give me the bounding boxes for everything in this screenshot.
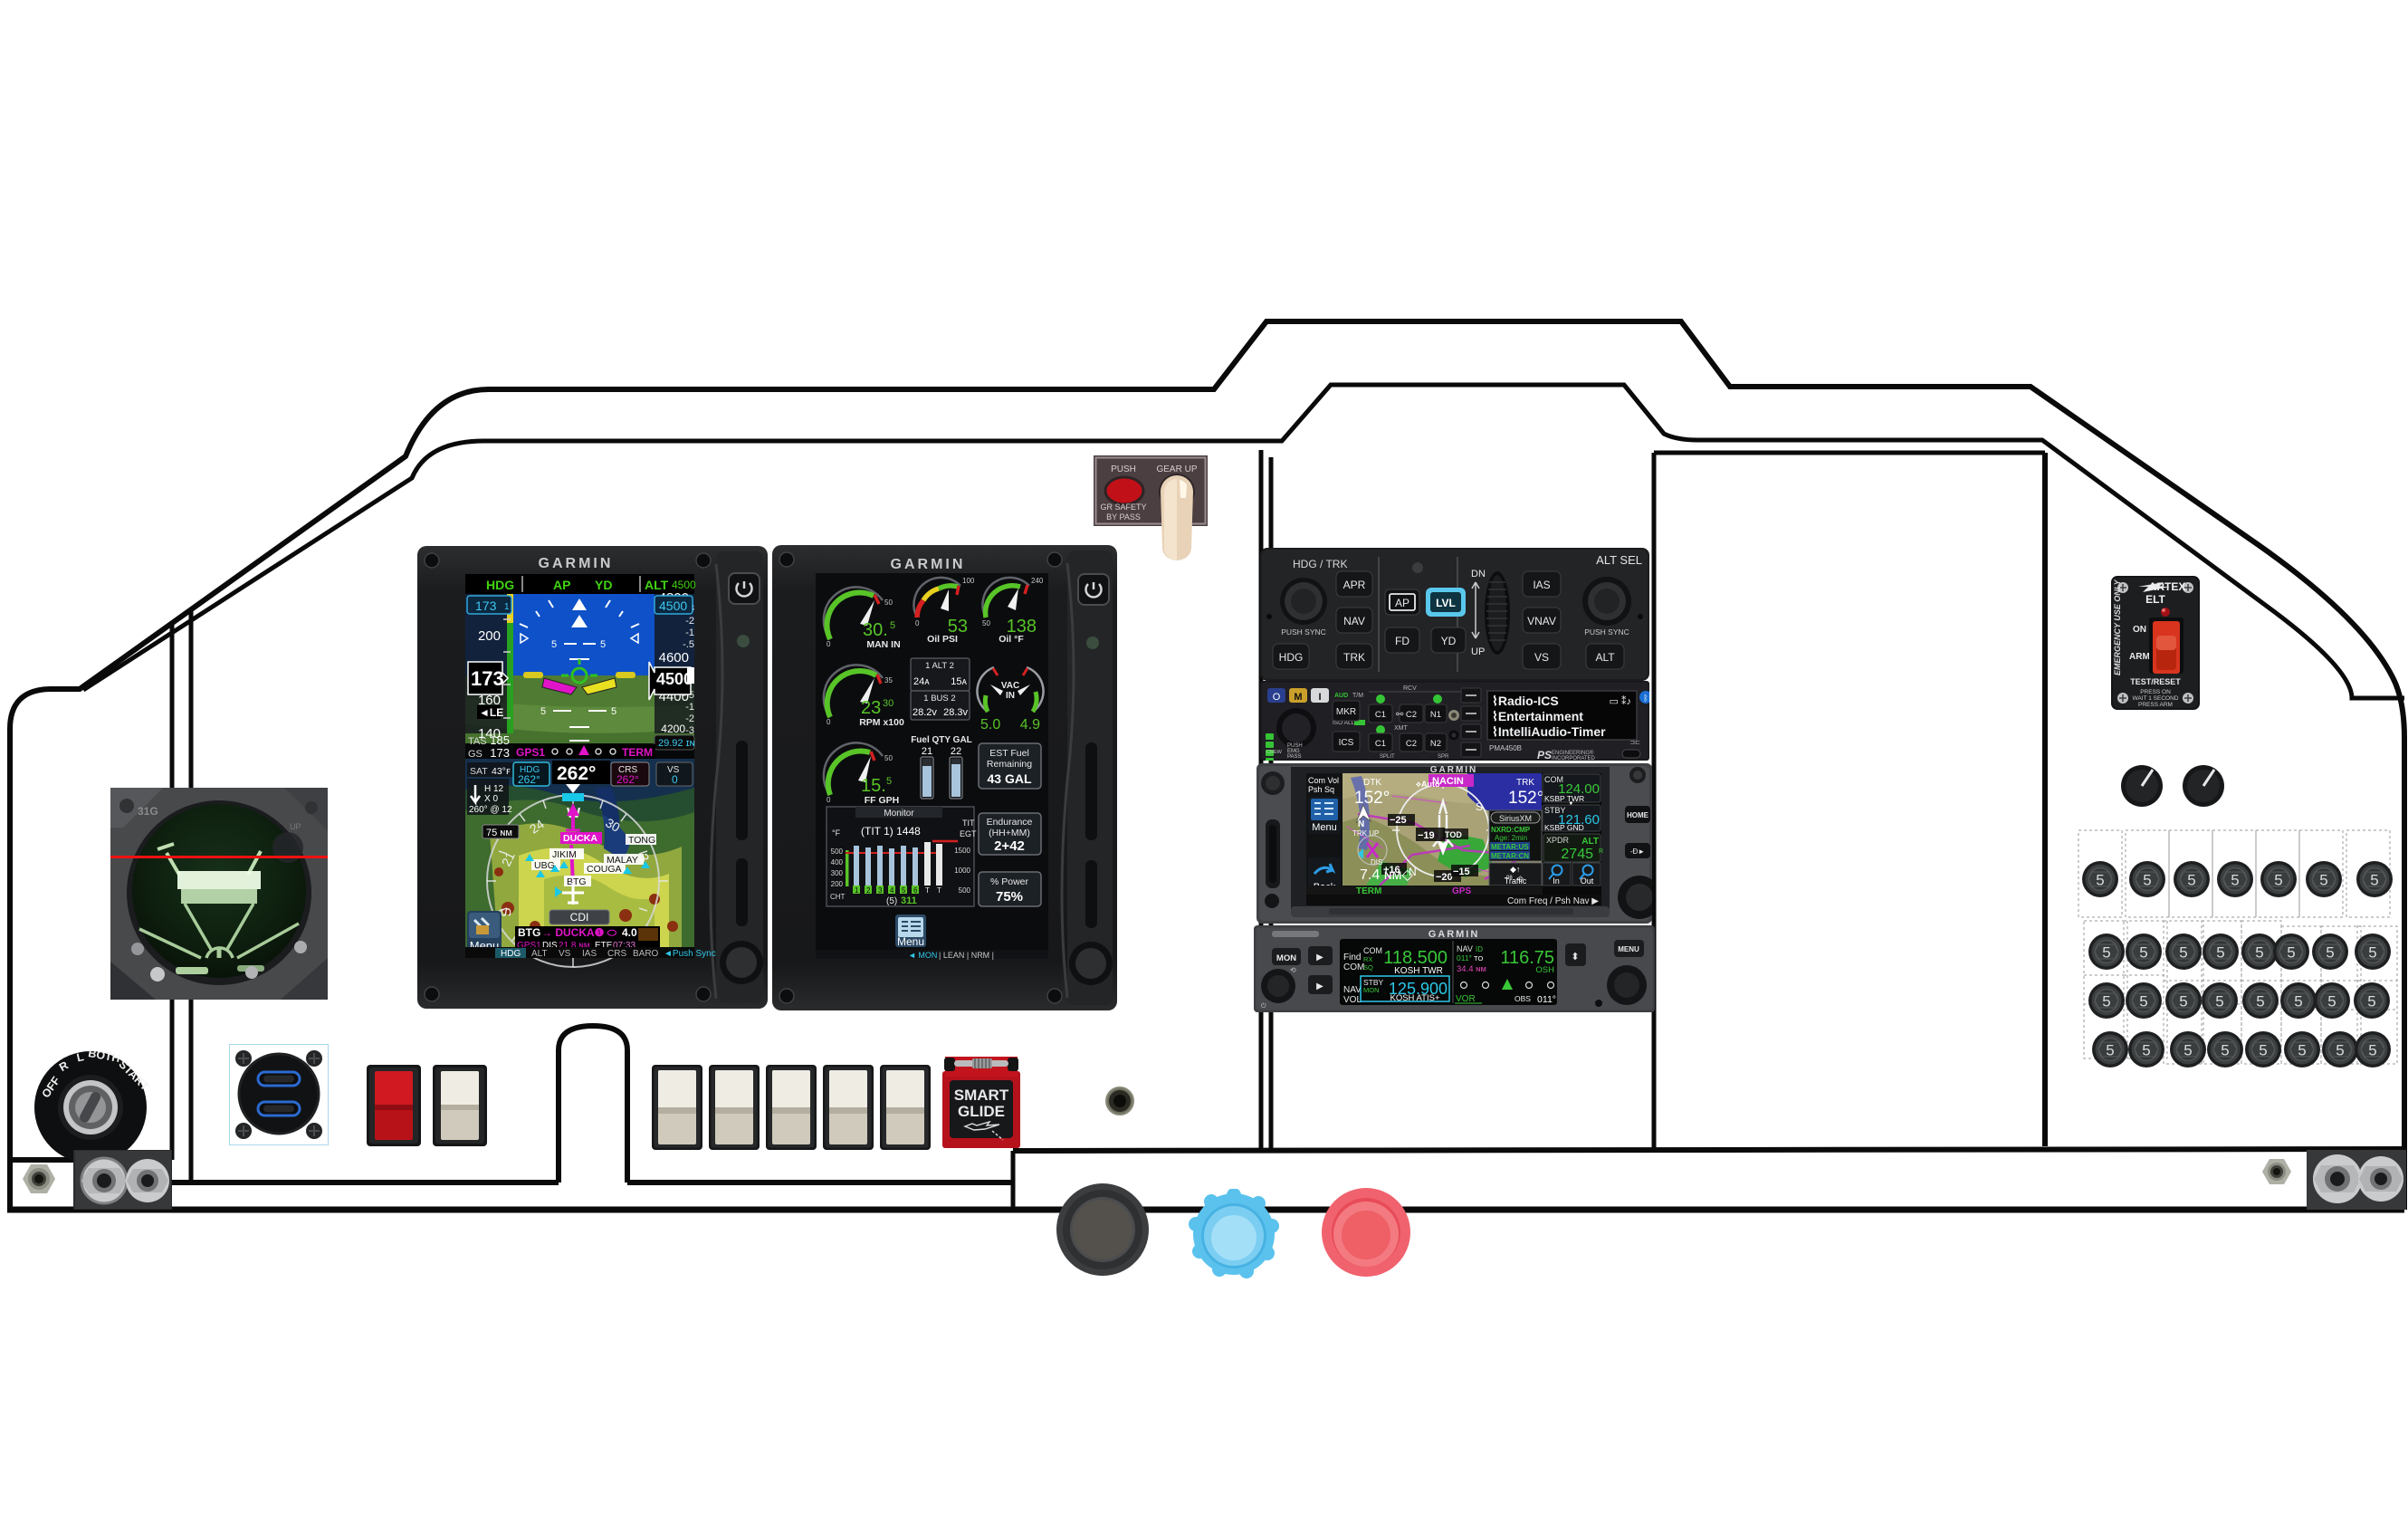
svg-text:5: 5 — [890, 620, 895, 631]
svg-text:200: 200 — [478, 628, 501, 644]
svg-text:29.92 ɪɴ: 29.92 ɪɴ — [658, 738, 695, 749]
svg-text:GLIDE: GLIDE — [958, 1103, 1005, 1120]
svg-text:5: 5 — [902, 886, 906, 895]
svg-text:173: 173 — [490, 746, 510, 760]
svg-text:DUCKA: DUCKA — [563, 833, 597, 844]
svg-text:1: 1 — [504, 602, 510, 612]
svg-text:⬍: ⬍ — [1571, 952, 1579, 962]
svg-text:AP: AP — [553, 578, 570, 592]
svg-text:50: 50 — [982, 619, 990, 627]
svg-text:NAV: NAV — [1343, 615, 1365, 627]
svg-text:43 GAL: 43 GAL — [987, 771, 1031, 786]
svg-text:ICS: ICS — [1339, 738, 1354, 748]
svg-text:ID: ID — [1476, 945, 1483, 953]
svg-text:BY PASS: BY PASS — [1106, 512, 1141, 522]
svg-text:N: N — [1358, 819, 1364, 829]
svg-text:PASS: PASS — [1287, 754, 1302, 760]
svg-text:15.: 15. — [861, 776, 886, 796]
svg-text:300: 300 — [831, 869, 844, 877]
svg-text:MKR: MKR — [1336, 707, 1356, 717]
svg-text:JIKIM: JIKIM — [552, 849, 577, 860]
svg-text:011°: 011° — [1537, 994, 1556, 1005]
svg-text:COM: COM — [1343, 962, 1364, 972]
svg-text:Com Freq / Psh Nav ▶: Com Freq / Psh Nav ▶ — [1507, 896, 1599, 906]
svg-text:VOR: VOR — [1456, 994, 1476, 1004]
svg-text:C1: C1 — [1375, 710, 1386, 720]
svg-text:-3: -3 — [685, 725, 694, 736]
svg-text:MON: MON — [1363, 986, 1380, 994]
svg-text:2745: 2745 — [1561, 847, 1593, 862]
svg-text:CDI: CDI — [570, 911, 589, 924]
svg-text:→ DUCKA❶ ⬭: → DUCKA❶ ⬭ — [541, 926, 617, 939]
svg-text:HDG: HDG — [486, 578, 514, 592]
svg-text:PS: PS — [1537, 749, 1552, 761]
svg-text:1 BUS 2: 1 BUS 2 — [923, 694, 955, 704]
svg-text:TAS: TAS — [468, 736, 487, 747]
svg-text:TERM: TERM — [622, 746, 653, 759]
svg-text:NAV: NAV — [1457, 944, 1473, 953]
svg-text:YD: YD — [1441, 635, 1457, 647]
svg-text:EST Fuel: EST Fuel — [989, 748, 1029, 759]
svg-text:262°: 262° — [616, 773, 639, 786]
svg-text:TO: TO — [1474, 954, 1483, 962]
svg-text:SAT: SAT — [470, 766, 488, 777]
svg-text:5.0: 5.0 — [980, 717, 1000, 732]
svg-text:0: 0 — [827, 718, 831, 726]
svg-text:UBG: UBG — [534, 860, 555, 871]
svg-text:262°: 262° — [557, 763, 596, 784]
svg-text:MON: MON — [1276, 953, 1296, 963]
svg-text:23: 23 — [861, 698, 881, 718]
svg-text:T: T — [925, 886, 930, 895]
svg-text:(HH+MM): (HH+MM) — [989, 828, 1030, 838]
svg-text:FF GPH: FF GPH — [865, 795, 900, 806]
svg-text:GARMIN: GARMIN — [891, 557, 966, 572]
svg-text:| LEAN | NRM |: | LEAN | NRM | — [939, 951, 994, 960]
svg-text:TRK: TRK — [1343, 651, 1365, 664]
svg-text:-1: -1 — [685, 702, 694, 713]
svg-text:GPS1: GPS1 — [516, 746, 545, 759]
svg-text:CHT: CHT — [830, 893, 846, 901]
svg-text:152°: 152° — [1508, 789, 1543, 808]
svg-text:7.4 ɴᴍ◇: 7.4 ɴᴍ◇ — [1360, 867, 1414, 883]
svg-text:30: 30 — [883, 698, 893, 709]
svg-text:S: S — [1476, 800, 1483, 813]
svg-text:GS: GS — [468, 749, 483, 760]
svg-text:Out: Out — [1581, 876, 1594, 886]
svg-text:VNAV: VNAV — [1527, 615, 1556, 627]
svg-text:N1: N1 — [1430, 710, 1441, 720]
svg-text:-Ð►: -Ð► — [1630, 847, 1645, 856]
svg-text:011°: 011° — [1457, 953, 1472, 962]
svg-text:1 ALT 2: 1 ALT 2 — [925, 661, 954, 671]
svg-text:TEST/RESET: TEST/RESET — [2130, 677, 2181, 686]
svg-text:−19: −19 — [1418, 830, 1435, 841]
svg-text:1500: 1500 — [954, 847, 970, 855]
svg-text:Endurance: Endurance — [987, 817, 1033, 828]
svg-text:-1: -1 — [685, 627, 694, 638]
svg-text:◄LE: ◄LE — [479, 706, 503, 719]
svg-text:35: 35 — [884, 676, 893, 685]
svg-text:1000: 1000 — [954, 867, 970, 875]
svg-text:KSBP GND: KSBP GND — [1544, 823, 1584, 832]
svg-text:UP: UP — [1471, 646, 1485, 657]
svg-text:O: O — [1273, 692, 1281, 703]
svg-text:2: 2 — [866, 886, 871, 895]
svg-text:22: 22 — [951, 746, 961, 757]
svg-text:EMERGENCY USE ONLY: EMERGENCY USE ONLY — [2113, 579, 2122, 675]
svg-text:−20: −20 — [1436, 872, 1453, 883]
svg-text:⌇Entertainment: ⌇Entertainment — [1492, 709, 1583, 723]
svg-text:28.2ᴠ: 28.2ᴠ — [913, 707, 937, 718]
svg-text:Oil PSI: Oil PSI — [927, 634, 958, 645]
svg-text:TONG: TONG — [628, 835, 655, 846]
svg-text:▭ ⁑♪: ▭ ⁑♪ — [1610, 695, 1631, 707]
svg-text:OBS: OBS — [1515, 994, 1531, 1003]
svg-text:152°: 152° — [1354, 789, 1390, 808]
svg-text:⟡Auto: ⟡Auto — [1416, 780, 1440, 789]
svg-text:NAV: NAV — [1343, 985, 1362, 995]
svg-text:IAS: IAS — [582, 949, 597, 959]
svg-text:50: 50 — [884, 754, 893, 762]
svg-text:AP: AP — [1395, 597, 1409, 609]
svg-text:TIT: TIT — [962, 819, 975, 828]
svg-text:▶: ▶ — [1316, 981, 1323, 991]
svg-text:XPDR: XPDR — [1546, 836, 1570, 845]
svg-text:24ᴀ: 24ᴀ — [913, 676, 930, 687]
svg-text:34.4 ɴᴍ: 34.4 ɴᴍ — [1457, 964, 1486, 974]
svg-text:4600: 4600 — [659, 650, 689, 665]
svg-text:262°: 262° — [518, 773, 540, 786]
svg-text:311: 311 — [901, 895, 917, 906]
svg-text:RPM x100: RPM x100 — [859, 717, 904, 728]
svg-text:BARO: BARO — [633, 949, 659, 959]
svg-text:XMT: XMT — [1394, 725, 1409, 732]
svg-text:DTK: DTK — [1363, 778, 1381, 788]
svg-text:NXRD:CMP: NXRD:CMP — [1491, 826, 1531, 834]
svg-text:PUSH SYNC: PUSH SYNC — [1584, 627, 1629, 637]
svg-text:PUSH: PUSH — [1111, 464, 1136, 474]
svg-text:Menu: Menu — [897, 935, 924, 948]
svg-text:240: 240 — [1031, 577, 1044, 585]
svg-text:Monitor: Monitor — [884, 809, 914, 819]
svg-text:T: T — [937, 886, 941, 895]
svg-text:C1: C1 — [1375, 739, 1386, 749]
svg-text:⌇IntelliAudio-Timer: ⌇IntelliAudio-Timer — [1492, 724, 1606, 739]
svg-text:M: M — [1294, 692, 1302, 703]
svg-text:0: 0 — [827, 640, 831, 648]
svg-text:⚯: ⚯ — [1396, 710, 1404, 720]
svg-text:COUGA: COUGA — [587, 864, 622, 875]
svg-text:HOME: HOME — [1627, 811, 1649, 819]
svg-text:ALT: ALT — [531, 949, 548, 959]
svg-text:4500: 4500 — [659, 598, 687, 613]
svg-text:C2: C2 — [1406, 739, 1417, 749]
svg-text:Psh Sq: Psh Sq — [1308, 785, 1334, 794]
svg-text:0: 0 — [827, 796, 831, 804]
svg-text:⟲: ⟲ — [1290, 966, 1296, 974]
svg-text:Oil °F: Oil °F — [999, 634, 1024, 645]
svg-text:3: 3 — [878, 886, 883, 895]
svg-text:YD: YD — [595, 578, 612, 592]
svg-text:ALT: ALT — [1581, 837, 1599, 847]
svg-text:260° @ 12: 260° @ 12 — [469, 805, 512, 815]
svg-text:IN: IN — [1006, 691, 1015, 701]
svg-text:Fuel QTY GAL: Fuel QTY GAL — [911, 735, 972, 745]
svg-text:APR: APR — [1343, 579, 1366, 591]
svg-text:75 ɴᴍ: 75 ɴᴍ — [486, 828, 512, 838]
svg-text:FD: FD — [1395, 635, 1409, 647]
svg-text:OSH: OSH — [1535, 965, 1554, 975]
svg-text:PUSH SYNC: PUSH SYNC — [1281, 627, 1326, 637]
svg-text:LVL: LVL — [1436, 597, 1456, 609]
svg-text:HDG: HDG — [501, 949, 521, 959]
svg-text:5: 5 — [551, 639, 557, 650]
svg-text:30.: 30. — [863, 620, 888, 640]
svg-text:SQ: SQ — [1363, 963, 1373, 972]
svg-text:21: 21 — [922, 746, 932, 757]
svg-text:VOL: VOL — [1343, 995, 1362, 1005]
svg-text:ALT: ALT — [1595, 651, 1615, 664]
svg-text:RCV: RCV — [1403, 685, 1417, 692]
svg-text:GEAR UP: GEAR UP — [1156, 464, 1197, 474]
svg-text:5: 5 — [886, 776, 892, 787]
svg-text:◆↑: ◆↑ — [1510, 865, 1520, 874]
svg-text:Traffic: Traffic — [1505, 876, 1527, 886]
svg-text:GARMIN: GARMIN — [539, 556, 614, 571]
svg-text:28.3ᴠ: 28.3ᴠ — [943, 707, 968, 718]
svg-text:MAN IN: MAN IN — [866, 639, 900, 650]
svg-text:GARMIN: GARMIN — [1429, 929, 1480, 940]
svg-text:Age: 2min: Age: 2min — [1495, 834, 1527, 842]
svg-text:TERM: TERM — [1356, 886, 1381, 896]
svg-text:VS: VS — [1534, 651, 1549, 664]
svg-text:118.500: 118.500 — [1383, 948, 1448, 968]
svg-text:Find: Find — [1343, 953, 1361, 962]
svg-text:200: 200 — [831, 880, 844, 888]
svg-text:Remaining: Remaining — [987, 759, 1032, 770]
svg-text:SPR: SPR — [1438, 754, 1449, 760]
svg-text:⌇Radio-ICS: ⌇Radio-ICS — [1492, 694, 1559, 708]
svg-text:DN: DN — [1471, 569, 1486, 579]
svg-text:KSBP TWR: KSBP TWR — [1544, 794, 1584, 803]
svg-text:WAIT 1 SECOND: WAIT 1 SECOND — [2133, 695, 2179, 702]
svg-text:0: 0 — [672, 773, 678, 786]
svg-text:4: 4 — [890, 886, 894, 895]
svg-text:0: 0 — [915, 619, 920, 627]
svg-text:31G: 31G — [138, 805, 158, 818]
svg-text:6: 6 — [913, 886, 918, 895]
svg-text:5: 5 — [611, 706, 616, 717]
svg-text:100: 100 — [962, 577, 975, 585]
svg-text:◄ MON: ◄ MON — [908, 951, 937, 960]
svg-text:-2: -2 — [685, 713, 694, 724]
svg-text:BTG: BTG — [567, 876, 587, 887]
svg-text:4200: 4200 — [661, 723, 685, 735]
svg-text:R: R — [1599, 848, 1603, 855]
svg-text:2+42: 2+42 — [994, 838, 1025, 854]
svg-text:▶: ▶ — [1316, 953, 1323, 962]
svg-text:(5): (5) — [886, 896, 897, 906]
svg-text:400: 400 — [831, 858, 844, 867]
svg-text:ELT: ELT — [2145, 593, 2165, 606]
svg-text:−25: −25 — [1390, 815, 1407, 826]
svg-text:X 0: X 0 — [484, 794, 498, 804]
svg-text:⏻: ⏻ — [1261, 1002, 1266, 1010]
svg-text:METAR:US: METAR:US — [1491, 843, 1529, 851]
svg-text:BTG: BTG — [518, 926, 540, 939]
svg-text:AUD: AUD — [1334, 693, 1348, 699]
svg-text:VAC: VAC — [1001, 681, 1019, 691]
svg-text:ENGINEERING®: ENGINEERING® — [1552, 750, 1594, 756]
svg-text:−15: −15 — [1453, 867, 1470, 877]
svg-text:-.5: -.5 — [683, 639, 694, 650]
svg-text:(TIT 1) 1448: (TIT 1) 1448 — [861, 825, 921, 838]
svg-text:VS: VS — [559, 949, 571, 959]
svg-text:METAR:CN: METAR:CN — [1491, 852, 1529, 860]
svg-text:GR SAFETY: GR SAFETY — [1100, 503, 1146, 512]
svg-text:C2: C2 — [1406, 710, 1417, 720]
svg-text:173: 173 — [471, 667, 504, 690]
svg-text:5: 5 — [600, 639, 606, 650]
svg-text:75%: 75% — [996, 889, 1023, 905]
svg-text:173: 173 — [475, 598, 497, 613]
svg-text:-2: -2 — [685, 616, 694, 627]
svg-text:Menu: Menu — [1312, 822, 1337, 833]
svg-text:43°ꜰ: 43°ꜰ — [492, 766, 511, 777]
svg-text:TRK: TRK — [1516, 778, 1534, 788]
svg-text:SMART: SMART — [954, 1087, 1009, 1104]
svg-text:SPLIT: SPLIT — [1380, 754, 1395, 760]
svg-text:185: 185 — [490, 733, 510, 747]
svg-text:4500: 4500 — [672, 579, 696, 591]
svg-text:HDG / TRK: HDG / TRK — [1293, 558, 1347, 570]
svg-text:T/M: T/M — [1352, 693, 1363, 699]
svg-text:N2: N2 — [1430, 739, 1441, 749]
svg-text:ᛒ: ᛒ — [1643, 694, 1648, 703]
svg-text:ARTEX: ARTEX — [2149, 580, 2186, 593]
svg-text:ARM: ARM — [2129, 652, 2150, 662]
svg-text:GPS: GPS — [1452, 886, 1471, 896]
svg-text:PRESS ARM: PRESS ARM — [2138, 702, 2173, 708]
svg-text:500: 500 — [831, 847, 844, 856]
svg-text:Com Vol: Com Vol — [1308, 776, 1339, 785]
svg-text:EGT: EGT — [960, 829, 977, 838]
svg-text:KOSH TWR: KOSH TWR — [1394, 966, 1443, 976]
svg-text:°F: °F — [832, 828, 841, 838]
svg-text:CREW: CREW — [1266, 750, 1283, 755]
svg-text:H 12: H 12 — [484, 784, 504, 794]
svg-text:PMA450B: PMA450B — [1489, 744, 1522, 752]
svg-text:4.9: 4.9 — [1020, 717, 1040, 732]
svg-text:IAS: IAS — [1533, 579, 1550, 591]
svg-text:ALT SEL: ALT SEL — [1596, 553, 1642, 567]
svg-text:⊐⊏: ⊐⊏ — [1629, 740, 1640, 746]
svg-text:ON: ON — [2133, 625, 2146, 635]
svg-text:PRESS ON: PRESS ON — [2140, 689, 2171, 695]
svg-text:50: 50 — [884, 598, 893, 607]
svg-text:COM: COM — [1363, 946, 1382, 955]
svg-text:15ᴀ: 15ᴀ — [951, 676, 967, 687]
svg-text:500: 500 — [959, 886, 971, 895]
svg-text:◄Push Sync: ◄Push Sync — [664, 949, 716, 959]
svg-text:UP: UP — [290, 822, 301, 831]
svg-text:HDG: HDG — [1279, 651, 1304, 664]
svg-text:KOSH ATIS+: KOSH ATIS+ — [1390, 993, 1440, 1003]
svg-text:% Power: % Power — [990, 876, 1029, 887]
svg-text:TOD: TOD — [1445, 830, 1462, 839]
svg-text:SiriusXM: SiriusXM — [1499, 814, 1532, 823]
svg-text:1: 1 — [855, 886, 859, 895]
svg-text:MENU: MENU — [1618, 945, 1639, 953]
svg-text:RX: RX — [1363, 955, 1372, 963]
svg-text:CRS: CRS — [607, 949, 626, 959]
svg-text:In: In — [1553, 876, 1560, 886]
svg-text:INCORPORATED: INCORPORATED — [1552, 756, 1596, 761]
svg-text:5: 5 — [540, 706, 546, 717]
svg-text:I: I — [1318, 692, 1321, 703]
